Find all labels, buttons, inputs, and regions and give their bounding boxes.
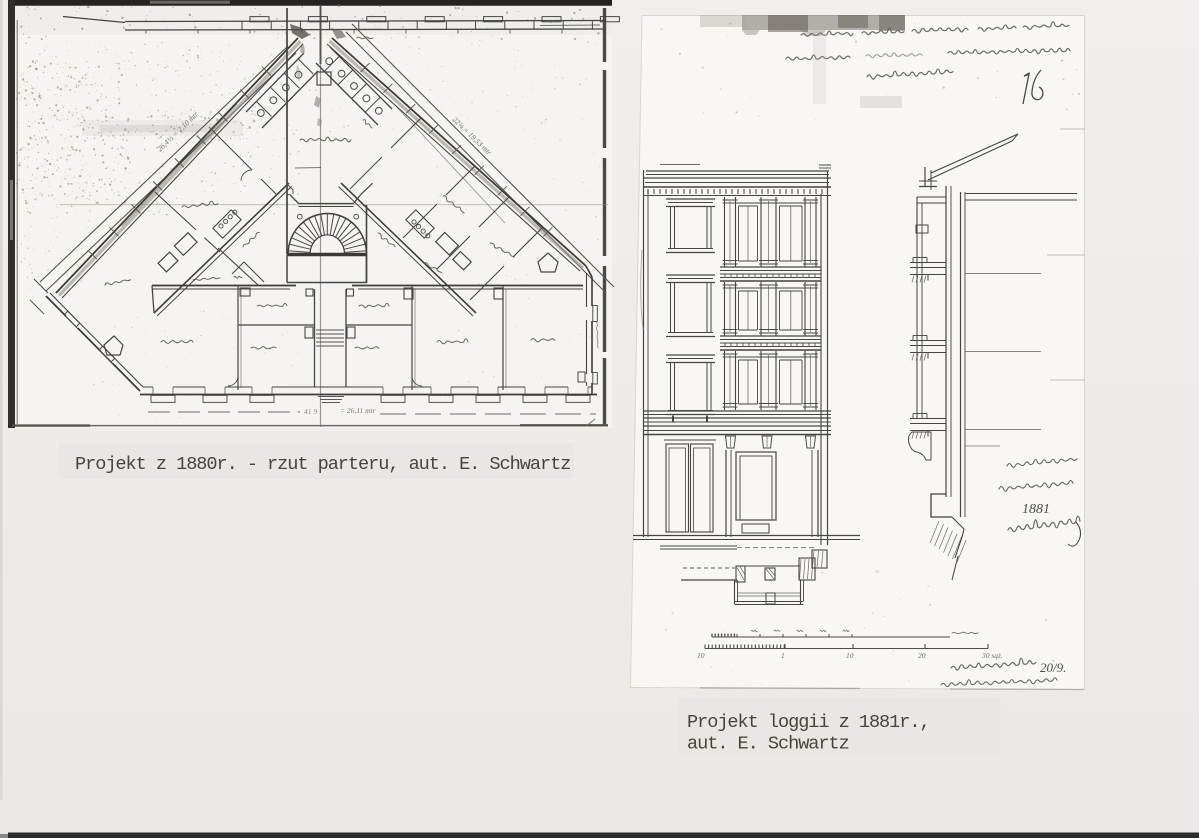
svg-text:= 26,11 mtr: = 26,11 mtr — [340, 406, 376, 415]
svg-text:10: 10 — [846, 651, 854, 660]
svg-text:41 9: 41 9 — [304, 407, 317, 416]
svg-text:1: 1 — [781, 651, 785, 660]
svg-text:1881: 1881 — [1022, 502, 1050, 517]
svg-text:30 sąż.: 30 sąż. — [981, 651, 1003, 660]
svg-text:Projekt z 1880r. - rzut parter: Projekt z 1880r. - rzut parteru, aut. E.… — [75, 454, 570, 475]
svg-text:aut. E. Schwartz: aut. E. Schwartz — [687, 734, 849, 755]
svg-text:20/9.: 20/9. — [1040, 660, 1066, 675]
svg-text:20: 20 — [918, 651, 926, 660]
svg-text:10: 10 — [697, 651, 705, 660]
svg-text:Projekt loggii z 1881r.,: Projekt loggii z 1881r., — [687, 712, 930, 733]
